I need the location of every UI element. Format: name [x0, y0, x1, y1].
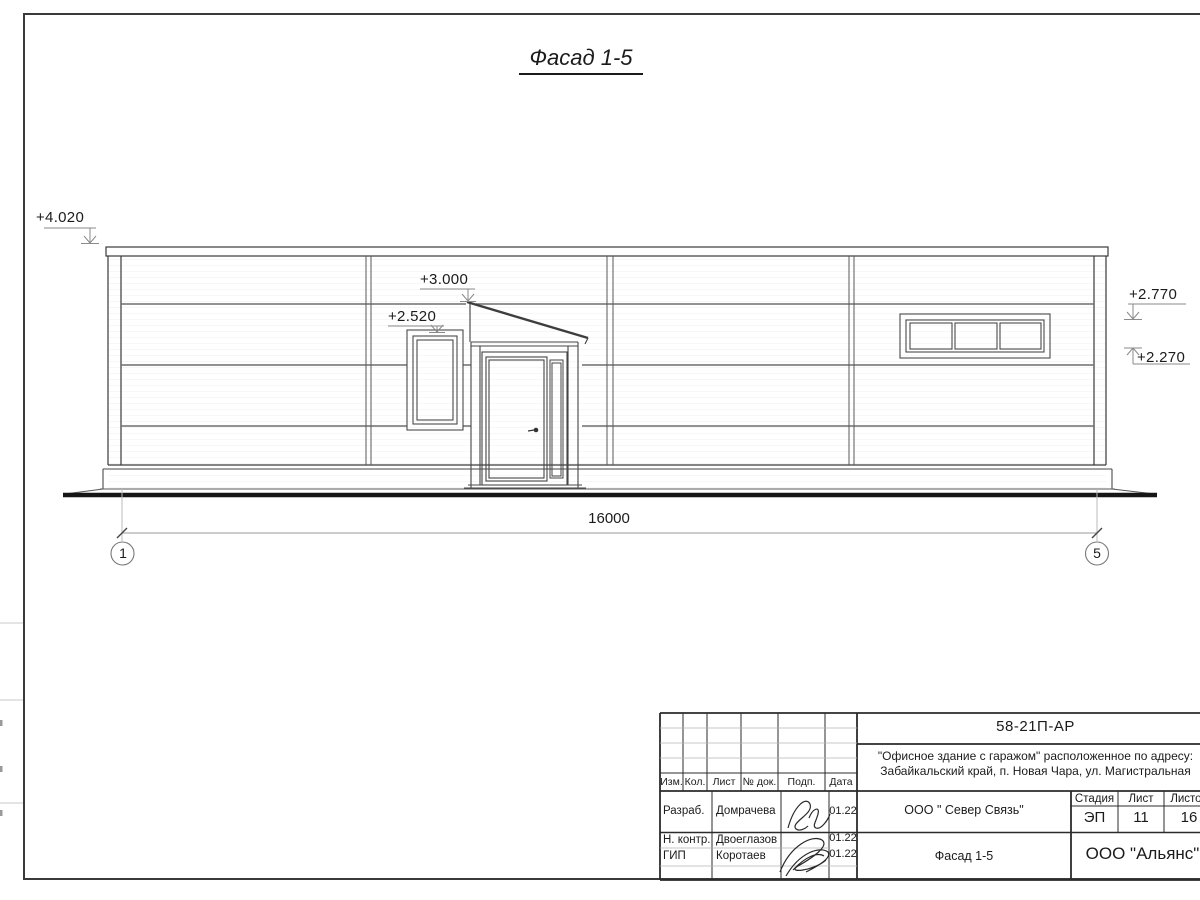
org-cell: ООО " Север Связь": [857, 804, 1071, 818]
sheets-label: Листов: [1164, 793, 1200, 806]
left-window: [407, 330, 463, 430]
axis-bubble-1: 1: [111, 546, 135, 561]
drawing-title: Фасад 1-5: [481, 46, 681, 75]
sheets-value: 16: [1164, 810, 1200, 827]
entrance-canopy: [467, 302, 588, 344]
project-address-2: Забайкальский край, п. Новая Чара, ул. М…: [857, 765, 1200, 778]
col-izm: Изм.: [660, 777, 683, 789]
elevation-mark-window: +2.520: [388, 309, 436, 326]
row-date-2: 01.22: [829, 848, 857, 860]
drawing-sheet: { "colors": { "ink": "#2e2e2e", "joint":…: [0, 0, 1200, 900]
elevation-mark-canopy: +3.000: [420, 272, 468, 289]
elevation-mark-right-lower: +2.270: [1137, 350, 1185, 367]
col-dok: № док.: [741, 777, 778, 789]
axis-bubble-5: 5: [1085, 546, 1109, 561]
col-data: Дата: [825, 777, 857, 789]
elevation-mark-symbols: [44, 228, 1190, 364]
ribbon-window: [900, 314, 1050, 358]
col-list: Лист: [707, 777, 741, 789]
sheet-label: Лист: [1118, 793, 1164, 806]
doc-number: 58-21П-АР: [857, 719, 1200, 736]
row-role-0: Разраб.: [663, 805, 704, 818]
base-ground: [63, 469, 1157, 495]
company-cell: ООО "Альянс": [1071, 845, 1200, 864]
door-handle-icon: [528, 428, 538, 433]
stage-label: Стадия: [1071, 793, 1118, 806]
elevation-mark-top: +4.020: [36, 210, 84, 227]
row-date-1: 01.22: [829, 832, 857, 844]
row-name-2: Коротаев: [716, 850, 766, 863]
overall-dimension: 16000: [559, 511, 659, 528]
col-podp: Подп.: [778, 777, 825, 789]
row-name-1: Двоеглазов: [716, 834, 777, 847]
project-address-1: "Офисное здание с гаражом" расположенное…: [857, 750, 1200, 763]
row-role-1: Н. контр.: [663, 834, 710, 847]
col-kol: Кол.: [683, 777, 707, 789]
row-role-2: ГИП: [663, 850, 686, 863]
sheet-title-cell: Фасад 1-5: [857, 850, 1071, 864]
entrance-portal: [471, 342, 578, 488]
stage-value: ЭП: [1071, 810, 1118, 827]
entrance-platform: [464, 485, 586, 488]
elevation-mark-right-upper: +2.770: [1129, 287, 1177, 304]
row-date-0: 01.22: [829, 805, 857, 817]
signatures: [780, 801, 830, 876]
row-name-0: Домрачева: [716, 805, 776, 818]
sheet-value: 11: [1118, 810, 1164, 827]
door-sidelight: [550, 360, 563, 478]
side-strip: [0, 623, 23, 816]
